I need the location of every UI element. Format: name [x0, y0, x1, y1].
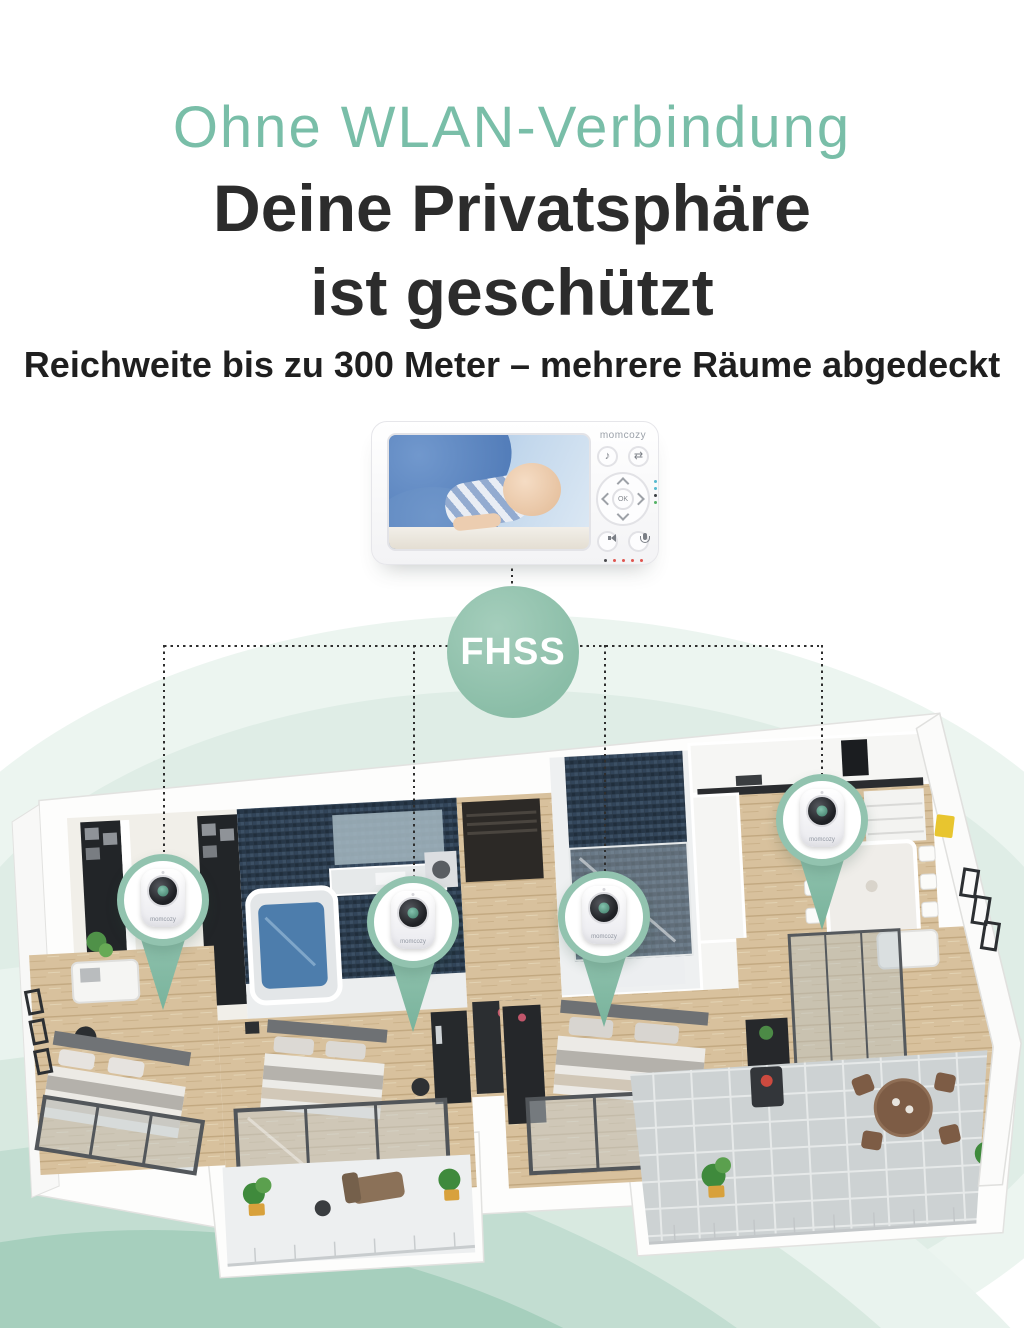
camera-brand-label: momcozy: [800, 837, 844, 843]
sound-button: [597, 531, 618, 552]
yellow-wall-sign: [934, 814, 955, 838]
pin-head: momcozy: [367, 876, 459, 968]
room-shower: [549, 750, 701, 995]
camera-switch-icon: ⇄: [634, 450, 643, 462]
main-heading-line2: ist geschützt: [0, 250, 1024, 334]
camera-lens-icon: [397, 897, 429, 929]
baby-camera: momcozy: [578, 886, 630, 948]
fhss-link-camera-2: [413, 645, 415, 878]
monitor-screen: [387, 433, 591, 551]
talk-button: [628, 531, 649, 552]
camera-lens-icon: [588, 892, 620, 924]
product-infographic: Ohne WLAN-Verbindung Deine Privatsphäre …: [0, 0, 1024, 1328]
baby-camera: momcozy: [796, 789, 848, 851]
bed-sheet: [389, 527, 589, 549]
ok-button: OK: [612, 488, 634, 510]
camera-switch-button: ⇄: [628, 446, 649, 467]
terrace: [630, 1050, 1003, 1244]
main-heading: Deine Privatsphäre ist geschützt: [0, 166, 1024, 334]
fhss-hub-badge: FHSS: [447, 586, 579, 718]
camera-brand-label: momcozy: [141, 917, 185, 923]
fhss-link-camera-3: [604, 645, 606, 873]
pin-head: momcozy: [776, 774, 868, 866]
lullaby-icon: ♪: [605, 450, 611, 462]
eyebrow-heading: Ohne WLAN-Verbindung: [0, 94, 1024, 161]
fhss-link-camera-4: [821, 645, 823, 776]
camera-body: momcozy: [141, 869, 185, 927]
baby-head: [503, 463, 561, 516]
chevron-down-icon: [617, 508, 630, 521]
camera-lens-icon: [147, 875, 179, 907]
baby-camera: momcozy: [387, 891, 439, 953]
camera-brand-label: momcozy: [582, 934, 626, 940]
led-indicator-row: [594, 559, 652, 562]
camera-lens-icon: [806, 795, 838, 827]
main-heading-line1: Deine Privatsphäre: [0, 166, 1024, 250]
fhss-link-monitor: [511, 562, 513, 587]
fhss-label: FHSS: [460, 631, 565, 674]
monitor-brand-logo: momcozy: [594, 430, 652, 441]
baby-camera: momcozy: [137, 869, 189, 931]
camera-brand-label: momcozy: [391, 939, 435, 945]
pin-head: momcozy: [117, 854, 209, 946]
camera-led: [821, 791, 824, 794]
camera-led: [162, 871, 165, 874]
chevron-right-icon: [632, 493, 645, 506]
camera-led: [603, 888, 606, 891]
monitor-control-panel: momcozy ♪ ⇄ OK: [594, 430, 652, 558]
camera-body: momcozy: [800, 789, 844, 847]
fhss-link-camera-1: [163, 645, 165, 860]
tagline: Reichweite bis zu 300 Meter – mehrere Rä…: [0, 344, 1024, 386]
pin-head: momcozy: [558, 871, 650, 963]
balcony: [222, 1154, 475, 1265]
camera-body: momcozy: [391, 891, 435, 949]
room-living-left: [26, 926, 226, 1182]
dpad-control: OK: [596, 472, 650, 526]
camera-body: momcozy: [582, 886, 626, 944]
side-indicator-dots: [654, 480, 657, 504]
camera-led: [412, 893, 415, 896]
lullaby-button: ♪: [597, 446, 618, 467]
baby-monitor-device: momcozy ♪ ⇄ OK: [371, 421, 659, 565]
